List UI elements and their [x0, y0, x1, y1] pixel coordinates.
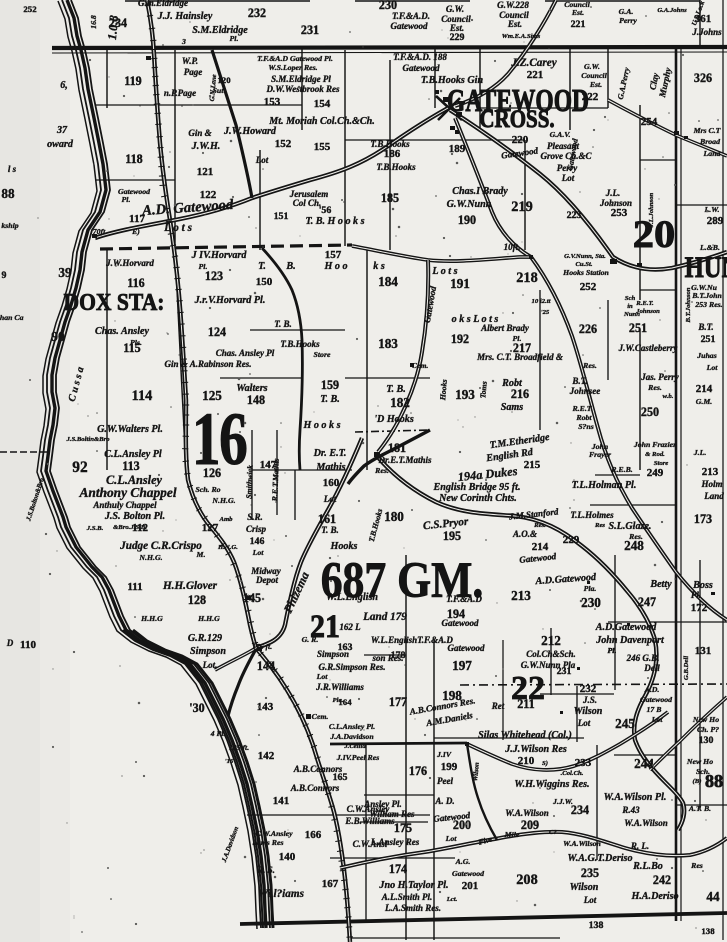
svg-text:G.A.Johns: G.A.Johns [657, 7, 687, 14]
svg-text:201: 201 [462, 880, 479, 892]
svg-text:N.H.G.: N.H.G. [211, 496, 235, 505]
svg-text:n.P.Page: n.P.Page [164, 88, 196, 98]
svg-text:S.R.: S.R. [247, 512, 263, 522]
svg-text:212: 212 [541, 633, 561, 648]
svg-text:191: 191 [450, 276, 470, 291]
svg-text:Sch. Ro: Sch. Ro [195, 485, 220, 494]
svg-text:Col Ch.: Col Ch. [293, 198, 322, 208]
svg-text:192: 192 [451, 332, 469, 346]
svg-text:252: 252 [580, 281, 597, 293]
svg-text:J IV.Horvard: J IV.Horvard [191, 250, 248, 261]
svg-text:Gatewood: Gatewood [640, 695, 672, 704]
svg-text:H.A.Deriso: H.A.Deriso [630, 891, 678, 902]
svg-text:208: 208 [516, 872, 537, 888]
svg-text:J.S.B.: J.S.B. [86, 525, 104, 532]
svg-text:218: 218 [516, 270, 537, 286]
svg-text:166: 166 [305, 829, 322, 841]
svg-text:English Bridge 95 ft.: English Bridge 95 ft. [433, 482, 521, 493]
svg-text:& Rod.: & Rod. [645, 451, 665, 458]
svg-text:155: 155 [314, 141, 331, 153]
svg-text:Robt: Robt [575, 413, 592, 422]
svg-text:Lot.: Lot. [202, 660, 218, 670]
svg-text:Wilson: Wilson [574, 706, 603, 717]
svg-text:231: 231 [301, 23, 319, 37]
svg-text:Gin &: Gin & [188, 128, 211, 138]
svg-text:'30: '30 [189, 701, 204, 715]
svg-text:S.L.Glaze.: S.L.Glaze. [609, 521, 652, 532]
svg-text:Pl.: Pl. [513, 334, 522, 343]
svg-text:J.S.Boltin&Bro: J.S.Boltin&Bro [65, 436, 110, 443]
svg-text:W.L.English: W.L.English [326, 592, 378, 603]
svg-text:Frayer: Frayer [589, 450, 612, 459]
svg-text:Anthony Chappel: Anthony Chappel [78, 485, 176, 500]
svg-text:John Frazier: John Frazier [633, 440, 677, 449]
svg-text:Juhas: Juhas [696, 351, 717, 360]
svg-text:160: 160 [323, 477, 340, 489]
svg-text:Lot: Lot [252, 548, 265, 557]
svg-text:Silas Whitehead (Col.): Silas Whitehead (Col.) [478, 730, 572, 741]
svg-text:l s: l s [8, 164, 17, 174]
svg-text:B.T.: B.T. [697, 322, 713, 332]
svg-text:Ansley Pl.: Ansley Pl. [363, 799, 402, 809]
svg-text:92: 92 [72, 459, 88, 476]
svg-text:J.W.H.: J.W.H. [191, 141, 221, 152]
svg-text:G.W.Nunn: G.W.Nunn [447, 199, 492, 210]
svg-text:113: 113 [122, 459, 139, 473]
svg-text:L o t s: L o t s [431, 266, 457, 277]
svg-text:W.A.Wilson: W.A.Wilson [624, 818, 668, 828]
svg-text:Depot: Depot [255, 575, 278, 585]
svg-text:153: 153 [264, 96, 281, 108]
svg-text:A.D.Gatewood: A.D.Gatewood [595, 622, 658, 633]
svg-text:chan Ca: chan Ca [0, 313, 24, 322]
svg-text:H.H.G: H.H.G [140, 614, 163, 623]
svg-text:118: 118 [125, 152, 142, 166]
svg-text:214: 214 [696, 383, 713, 395]
svg-text:J.IV.Peel Res: J.IV.Peel Res [336, 753, 380, 762]
svg-text:Sch: Sch [625, 295, 636, 302]
svg-text:221: 221 [527, 69, 544, 81]
svg-text:Betty: Betty [649, 579, 672, 590]
svg-text:Ch. P?: Ch. P? [697, 725, 719, 734]
svg-text:R.43: R.43 [621, 805, 640, 815]
svg-text:Mathis: Mathis [315, 462, 345, 473]
svg-text:90: 90 [51, 329, 65, 344]
svg-text:Wm.E.A.Sims: Wm.E.A.Sims [502, 33, 541, 40]
svg-text:1.0.8: 1.0.8 [105, 15, 121, 41]
svg-text:Gatewood: Gatewood [391, 21, 428, 31]
svg-text:Res.: Res. [533, 522, 546, 529]
svg-text:HUN: HUN [685, 251, 727, 284]
svg-text:180: 180 [384, 509, 404, 524]
svg-text:175: 175 [394, 821, 412, 835]
svg-text:Res.: Res. [628, 532, 643, 541]
svg-text:Res.: Res. [582, 361, 597, 370]
svg-text:116: 116 [127, 276, 144, 290]
svg-text:182: 182 [390, 395, 410, 410]
svg-text:10 i2.tt: 10 i2.tt [532, 298, 552, 305]
svg-text:o k s L o t s: o k s L o t s [452, 314, 499, 325]
svg-text:W.S.Loper Res.: W.S.Loper Res. [268, 63, 317, 72]
svg-text:G.R.Simpson Res.: G.R.Simpson Res. [318, 662, 385, 672]
svg-text:Sch.: Sch. [696, 767, 710, 776]
svg-text:16.8: 16.8 [89, 15, 98, 29]
svg-text:4 Pl.: 4 Pl. [210, 729, 226, 738]
svg-text:T. B.: T. B. [274, 319, 291, 329]
svg-text:173: 173 [694, 512, 712, 526]
svg-text:A. D.: A. D. [434, 796, 454, 806]
svg-text:138: 138 [589, 920, 604, 931]
svg-text:T. B. H o o k s: T. B. H o o k s [305, 216, 364, 227]
svg-text:176: 176 [409, 764, 427, 778]
svg-text:251: 251 [629, 321, 647, 335]
svg-text:Peel: Peel [437, 776, 453, 786]
svg-text:N.H.G.: N.H.G. [138, 553, 162, 562]
svg-text:Lot: Lot [583, 895, 597, 905]
svg-text:J.J. Hainsley: J.J. Hainsley [157, 11, 213, 22]
svg-text:kship: kship [1, 221, 18, 230]
svg-text:211: 211 [517, 697, 534, 711]
svg-text:R.E.T.Mathis: R.E.T.Mathis [270, 458, 281, 502]
svg-text:167: 167 [322, 878, 339, 890]
svg-text:R.L.Bo: R.L.Bo [632, 861, 663, 872]
svg-text:Robt: Robt [501, 378, 523, 389]
svg-text:J.J.Wilson Res: J.J.Wilson Res [504, 744, 567, 755]
svg-text:Est.: Est. [589, 80, 602, 89]
svg-text:88: 88 [1, 186, 15, 201]
svg-text:140: 140 [279, 851, 296, 863]
svg-text:249: 249 [647, 467, 664, 479]
svg-text:Pla.: Pla. [584, 584, 597, 593]
svg-text:W.A.Wilson: W.A.Wilson [505, 808, 549, 818]
svg-text:Wi l?iams: Wi l?iams [258, 888, 305, 900]
svg-text:195: 195 [443, 529, 461, 543]
svg-text:44: 44 [706, 889, 720, 904]
svg-text:T.F.&A.D: T.F.&A.D [446, 594, 482, 604]
svg-text:124: 124 [208, 325, 226, 339]
svg-text:120: 120 [217, 75, 231, 85]
svg-text:T.F.&A.D.: T.F.&A.D. [392, 11, 430, 21]
svg-text:141: 141 [273, 795, 290, 807]
svg-text:161: 161 [318, 512, 336, 526]
svg-text:Lot: Lot [651, 715, 664, 724]
svg-text:R. S.: R. S. [256, 865, 275, 875]
svg-text:Mrs. C.T. Broadfield &: Mrs. C.T. Broadfield & [476, 352, 563, 362]
svg-text:Amb: Amb [218, 516, 233, 523]
svg-text:183: 183 [378, 336, 398, 351]
svg-text:John Davenport: John Davenport [595, 635, 665, 646]
svg-text:Res: Res [594, 522, 605, 529]
svg-text:New Corinth Chts.: New Corinth Chts. [438, 493, 517, 504]
svg-text:Chas.I Brady: Chas.I Brady [452, 186, 508, 197]
svg-text:128: 128 [188, 593, 206, 607]
svg-text:Res.: Res. [647, 383, 662, 392]
svg-text:222: 222 [582, 91, 599, 103]
svg-text:A.T. B.: A.T. B. [688, 804, 711, 813]
svg-text:A.O.&: A.O.& [512, 529, 537, 539]
svg-text:W.H.Wiggins Res.: W.H.Wiggins Res. [514, 779, 589, 790]
svg-text:Page: Page [184, 67, 203, 77]
svg-text:174: 174 [389, 862, 407, 876]
svg-text:J.W.Horvard: J.W.Horvard [105, 258, 154, 268]
svg-text:Walters: Walters [236, 383, 267, 394]
svg-text:A.B.Connors: A.B.Connors [290, 783, 340, 793]
svg-text:215: 215 [524, 459, 541, 471]
svg-text:226: 226 [579, 322, 597, 336]
svg-text:Ret: Ret [491, 701, 505, 711]
svg-text:Toms: Toms [478, 381, 488, 399]
svg-text:CROSS.: CROSS. [479, 105, 554, 133]
svg-text:131: 131 [695, 645, 712, 657]
svg-text:S.M.Eldridge Pl: S.M.Eldridge Pl [271, 74, 331, 84]
svg-text:Lana: Lana [703, 149, 721, 158]
svg-text:New Ho: New Ho [692, 715, 719, 724]
svg-text:232: 232 [248, 6, 266, 20]
svg-text:B.T.John: B.T.John [691, 291, 722, 300]
svg-text:229: 229 [563, 534, 580, 546]
svg-text:159: 159 [321, 378, 339, 392]
svg-text:123: 123 [205, 269, 223, 283]
svg-text:220: 220 [512, 134, 529, 146]
svg-text:T.B.Hooks: T.B.Hooks [376, 162, 416, 172]
svg-text:w.b.: w.b. [663, 393, 674, 400]
svg-text:250: 250 [641, 405, 659, 419]
svg-text:New Ho: New Ho [686, 757, 713, 766]
svg-text:J.L.Johnson: J.L.Johnson [648, 192, 655, 228]
svg-text:253 Res.: 253 Res. [694, 300, 722, 309]
svg-text:'D Hooks: 'D Hooks [374, 414, 414, 425]
svg-text:Council: Council [581, 71, 607, 80]
svg-text:Est.: Est. [449, 23, 464, 33]
svg-text:G.W.: G.W. [584, 62, 600, 71]
svg-text:G.W.Walters Pl.: G.W.Walters Pl. [97, 424, 163, 435]
svg-text:J.W.Howard: J.W.Howard [223, 126, 277, 137]
svg-text:151: 151 [274, 211, 289, 222]
svg-text:L.&B.: L.&B. [699, 243, 720, 252]
svg-text:Pls.: Pls. [130, 338, 142, 347]
svg-text:R.E.B.: R.E.B. [610, 465, 632, 474]
svg-text:.Col.Ch.: .Col.Ch. [561, 770, 584, 777]
svg-text:J.J.W.: J.J.W. [552, 797, 573, 806]
svg-text:G.W.: G.W. [446, 4, 464, 14]
svg-text:Crisp: Crisp [246, 524, 267, 534]
svg-text:A.B.Connors: A.B.Connors [293, 764, 343, 774]
svg-text:Pl.: Pl. [199, 262, 208, 271]
svg-text:219: 219 [511, 199, 532, 215]
svg-text:144: 144 [257, 659, 275, 673]
svg-text:R. L.: R. L. [630, 841, 649, 851]
svg-text:Lot: Lot [445, 834, 458, 843]
svg-text:G.A.: G.A. [619, 7, 634, 16]
svg-text:'16: '16 [225, 758, 234, 765]
svg-text:253: 253 [611, 207, 628, 219]
svg-text:213: 213 [702, 466, 719, 478]
svg-text:Dr. E.T.: Dr. E.T. [313, 448, 347, 459]
svg-text:223: 223 [567, 210, 582, 221]
svg-text:B.T.Johnson: B.T.Johnson [685, 287, 692, 323]
svg-text:Jas. Perry: Jas. Perry [640, 372, 679, 382]
svg-text:Lot: Lot [323, 494, 337, 504]
svg-text:Gatewood: Gatewood [448, 643, 485, 653]
svg-text:Res.: Res. [374, 466, 389, 475]
svg-text:245: 245 [615, 716, 635, 731]
svg-text:Hooks Station: Hooks Station [562, 268, 609, 277]
svg-text:E): E) [131, 227, 140, 236]
svg-text:J.W.Castleberry: J.W.Castleberry [618, 343, 679, 353]
svg-text:Judge C.R.Crispo: Judge C.R.Crispo [119, 540, 202, 552]
svg-text:D.W.Westbrook Res: D.W.Westbrook Res [266, 84, 340, 94]
svg-text:70ft.: 70ft. [93, 227, 108, 236]
svg-text:197: 197 [452, 658, 472, 673]
svg-text:162 L: 162 L [339, 622, 361, 632]
svg-text:L o t s: L o t s [163, 222, 193, 234]
svg-text:J.A.Davidson: J.A.Davidson [329, 732, 373, 741]
svg-text:230: 230 [581, 595, 601, 610]
svg-text:213: 213 [511, 588, 531, 603]
svg-text:J.S.: J.S. [582, 695, 597, 705]
svg-text:247: 247 [638, 595, 656, 609]
svg-text:H o o k s: H o o k s [302, 420, 340, 431]
svg-text:130: 130 [699, 735, 714, 746]
svg-text:181: 181 [388, 441, 406, 455]
svg-text:17 B: 17 B [647, 705, 662, 714]
svg-text:126: 126 [203, 466, 221, 480]
svg-text:3: 3 [181, 37, 186, 46]
svg-text:T. B.: T. B. [321, 525, 338, 535]
svg-text:154: 154 [314, 98, 331, 110]
svg-text:G.M.: G.M. [696, 397, 713, 406]
svg-text:Chas. Ansley: Chas. Ansley [95, 326, 150, 337]
svg-text:Hooks: Hooks [330, 541, 358, 552]
svg-text:146: 146 [250, 536, 265, 547]
svg-text:J.L.: J.L. [605, 188, 621, 198]
svg-text:Mile: Mile [504, 830, 520, 839]
svg-text:G.V.Nunn, Sta.: G.V.Nunn, Sta. [564, 253, 606, 260]
svg-text:G. R.: G. R. [302, 635, 319, 644]
svg-text:39: 39 [58, 265, 72, 280]
svg-text:Pl.: Pl. [691, 590, 701, 600]
svg-text:119: 119 [124, 74, 141, 88]
svg-text:251: 251 [701, 334, 716, 345]
svg-text:152: 152 [275, 138, 292, 150]
svg-text:T. B.: T. B. [320, 394, 340, 405]
svg-text:Wilson: Wilson [570, 882, 599, 893]
svg-text:J.S. Bolton Pl.: J.S. Bolton Pl. [104, 511, 165, 522]
svg-text:Dr.E.T.Mathis: Dr.E.T.Mathis [378, 455, 432, 465]
svg-text:Res: Res [690, 861, 703, 870]
svg-text:242: 242 [653, 873, 671, 887]
svg-text:Simpson: Simpson [317, 649, 349, 659]
svg-text:R.E.T: R.E.T [571, 404, 592, 413]
svg-text:G.m.Eldridge: G.m.Eldridge [138, 0, 188, 8]
svg-text:221: 221 [571, 19, 586, 30]
svg-text:J.Z.Carey: J.Z.Carey [510, 57, 556, 69]
svg-text:326: 326 [694, 71, 712, 85]
svg-text:Johnson: Johnson [635, 308, 660, 315]
svg-text:Gin & A.Rabinson Res.: Gin & A.Rabinson Res. [165, 359, 252, 369]
svg-text:114: 114 [132, 388, 153, 404]
svg-text:Lot: Lot [316, 672, 329, 681]
svg-text:T.F.&A.D Gatewood Pl.: T.F.&A.D Gatewood Pl. [257, 54, 333, 63]
svg-text:186: 186 [384, 148, 401, 160]
svg-text:S): S) [542, 760, 548, 767]
svg-text:T.: T. [258, 261, 266, 272]
svg-text:125: 125 [202, 388, 222, 403]
svg-text:T.B.Hooks: T.B.Hooks [370, 139, 410, 149]
svg-text:T.L.Holmes: T.L.Holmes [570, 510, 614, 520]
svg-text:Simpson: Simpson [190, 646, 226, 657]
svg-text:Pl.: Pl. [122, 195, 131, 204]
svg-text:177: 177 [389, 695, 407, 709]
svg-text:254: 254 [641, 116, 658, 128]
svg-text:Col.Ch&Sch.: Col.Ch&Sch. [526, 649, 576, 659]
svg-text:10ft.: 10ft. [504, 242, 521, 252]
svg-text:Broad: Broad [699, 137, 720, 146]
svg-text:229: 229 [450, 32, 465, 43]
svg-text:Lot: Lot [706, 363, 719, 372]
svg-text:J.Cellia: J.Cellia [343, 743, 366, 750]
svg-text:Dell: Dell [643, 663, 660, 673]
svg-text:289: 289 [707, 215, 724, 227]
svg-text:Mrs C.T: Mrs C.T [693, 126, 722, 135]
svg-text:J.Johns: J.Johns [691, 27, 722, 37]
svg-text:William Res: William Res [370, 809, 415, 819]
svg-text:L.Ansley Res: L.Ansley Res [370, 837, 420, 847]
svg-text:37: 37 [56, 125, 68, 136]
svg-text:Lot: Lot [255, 155, 269, 165]
svg-text:hams Res: hams Res [253, 838, 284, 847]
svg-text:Anthuly Chappel: Anthuly Chappel [92, 500, 157, 510]
svg-text:Johnsee: Johnsee [569, 386, 601, 396]
svg-text:172: 172 [691, 602, 708, 614]
svg-text:Pl.: Pl. [230, 34, 239, 43]
svg-text:234: 234 [571, 803, 589, 817]
svg-text:W.P.: W.P. [182, 56, 198, 66]
svg-text:111: 111 [127, 581, 142, 593]
svg-text:B.T.: B.T. [571, 376, 587, 386]
svg-text:J.R.Williams: J.R.Williams [315, 682, 364, 692]
svg-text:k s: k s [373, 261, 385, 272]
svg-text:T.B.Hooks: T.B.Hooks [280, 339, 320, 349]
svg-text:193: 193 [455, 387, 475, 402]
svg-text:Smithwick: Smithwick [244, 465, 254, 499]
svg-text:H o o: H o o [324, 261, 348, 272]
svg-text:Perry: Perry [619, 16, 637, 25]
svg-text:Land: Land [703, 491, 724, 501]
svg-text:C.L.Ansley Pl: C.L.Ansley Pl [104, 449, 162, 460]
svg-text:H.H.Glover: H.H.Glover [162, 580, 218, 592]
svg-text:Lct.: Lct. [446, 896, 458, 903]
svg-text:Pla.: Pla. [333, 697, 344, 704]
svg-text:A.D.: A.D. [644, 685, 660, 694]
svg-text:DOX STA:: DOX STA: [63, 289, 164, 315]
svg-text:T.B.Hooks Gin: T.B.Hooks Gin [421, 75, 484, 86]
svg-text:G.A.V.: G.A.V. [550, 130, 571, 139]
svg-text:T. B.: T. B. [386, 384, 406, 395]
svg-text:233: 233 [575, 757, 592, 769]
svg-text:121: 121 [197, 166, 214, 178]
svg-text:Store: Store [314, 350, 331, 359]
svg-text:C.W.Ansley: C.W.Ansley [255, 829, 293, 838]
svg-text:(B): (B) [693, 778, 702, 785]
svg-text:H.H.G: H.H.G [197, 614, 220, 623]
svg-text:G.W.228: G.W.228 [497, 0, 529, 10]
svg-text:L.A.Smith Res.: L.A.Smith Res. [384, 903, 441, 913]
svg-text:138: 138 [701, 926, 715, 936]
svg-text:Lot: Lot [577, 718, 591, 728]
svg-text:A.G.: A.G. [455, 857, 471, 866]
svg-text:246 G.B.: 246 G.B. [626, 653, 660, 663]
